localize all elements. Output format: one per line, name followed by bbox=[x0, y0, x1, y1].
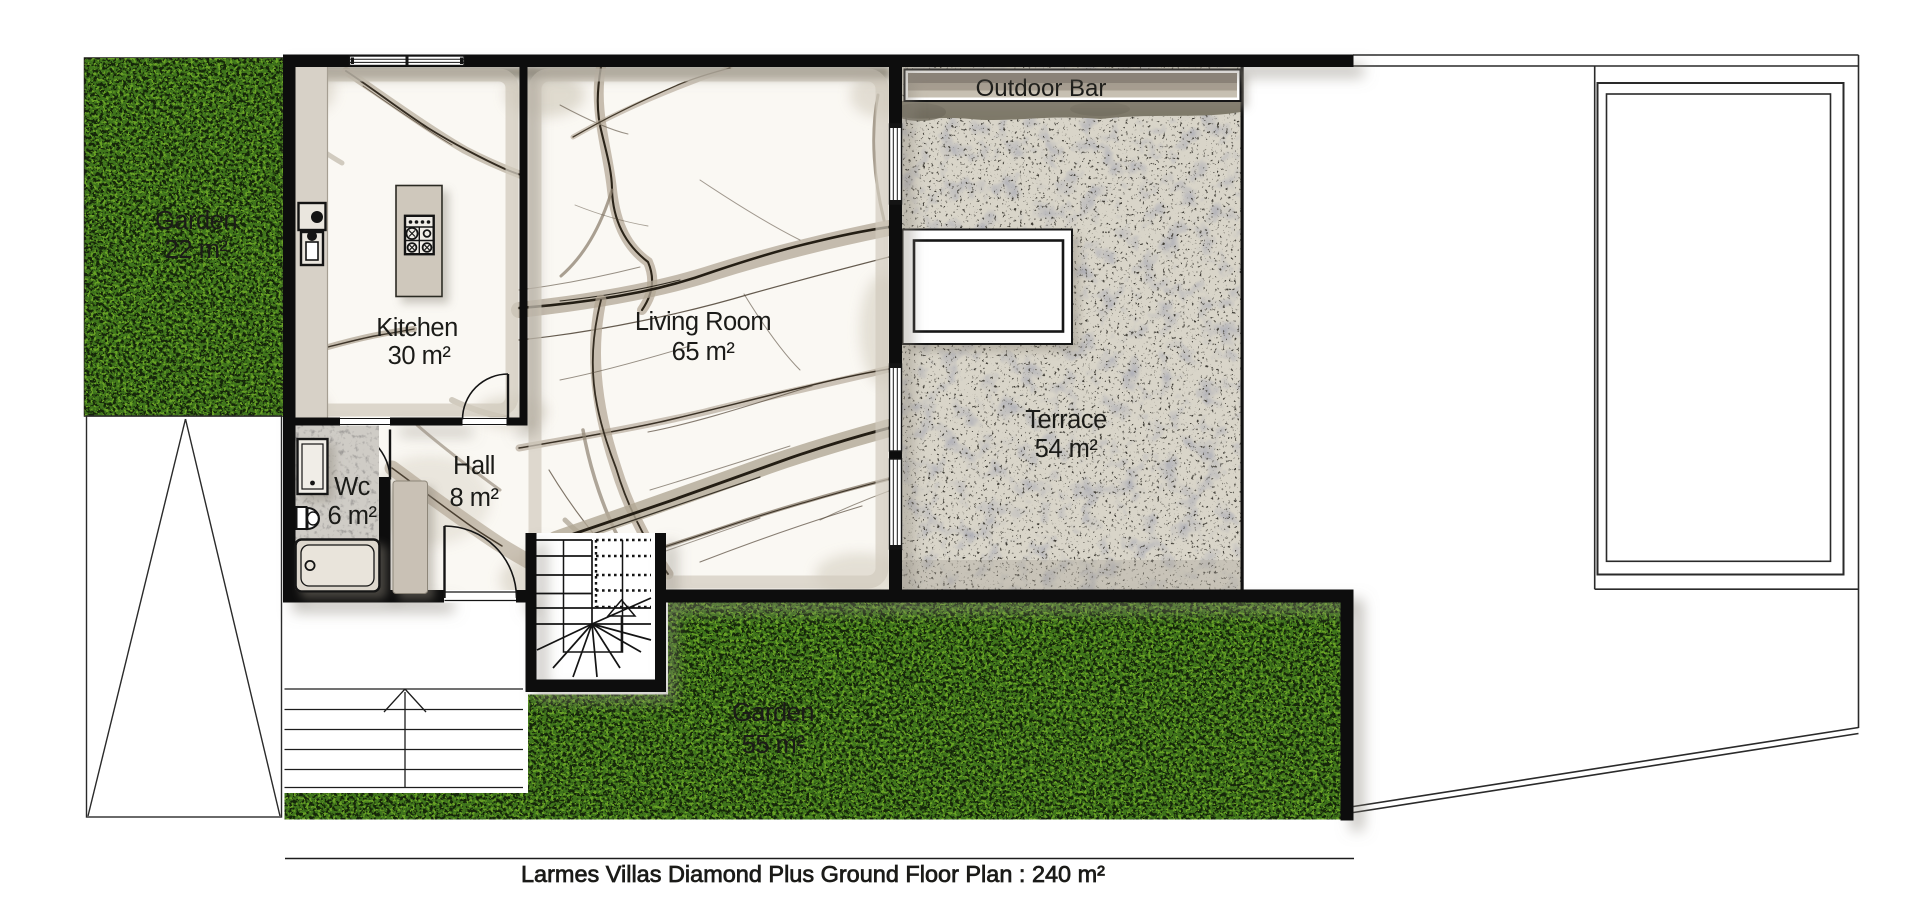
svg-text:Garden: Garden bbox=[155, 207, 237, 235]
svg-text:Kitchen: Kitchen bbox=[376, 314, 458, 342]
svg-text:65 m²: 65 m² bbox=[672, 338, 735, 366]
svg-text:Wc: Wc bbox=[334, 473, 371, 501]
svg-text:54 m²: 54 m² bbox=[1035, 435, 1098, 463]
svg-text:Outdoor Bar: Outdoor Bar bbox=[976, 75, 1107, 102]
svg-text:Hall: Hall bbox=[453, 452, 495, 480]
svg-text:Living Room: Living Room bbox=[635, 308, 771, 336]
svg-text:6 m²: 6 m² bbox=[328, 502, 377, 530]
svg-text:55 m²: 55 m² bbox=[742, 731, 805, 759]
svg-text:30 m²: 30 m² bbox=[388, 342, 451, 370]
svg-text:22 m²: 22 m² bbox=[165, 236, 228, 264]
svg-text:8 m²: 8 m² bbox=[450, 484, 499, 512]
svg-text:Garden: Garden bbox=[732, 699, 814, 727]
svg-text:Terrace: Terrace bbox=[1025, 406, 1107, 434]
svg-text:Larmes Villas Diamond Plus Gro: Larmes Villas Diamond Plus Ground Floor … bbox=[521, 861, 1105, 887]
